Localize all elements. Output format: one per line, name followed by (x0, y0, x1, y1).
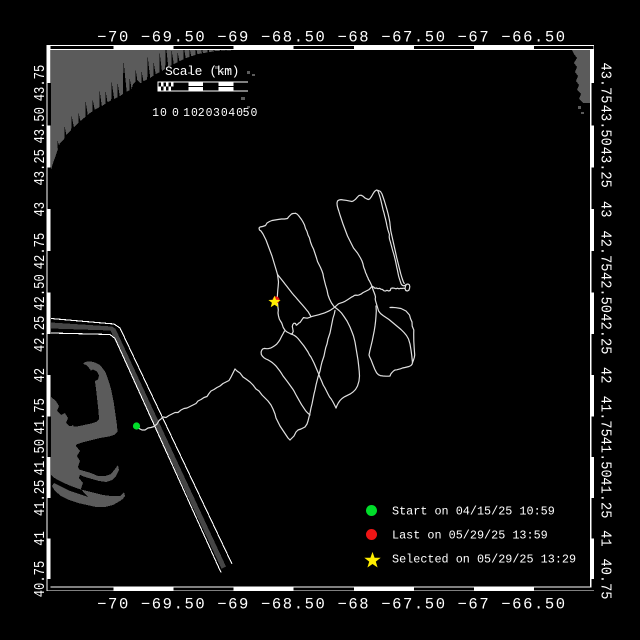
svg-text:−69.50: −69.50 (141, 596, 206, 614)
svg-text:42.25: 42.25 (33, 316, 49, 353)
svg-text:30: 30 (213, 107, 229, 120)
svg-text:−66.50: −66.50 (501, 29, 566, 47)
svg-text:41: 41 (33, 531, 49, 546)
svg-text:Last on 05/29/25 13:59: Last on 05/29/25 13:59 (392, 529, 548, 543)
svg-text:40.75: 40.75 (33, 561, 49, 598)
svg-text:41: 41 (597, 530, 613, 546)
svg-text:−70: −70 (97, 29, 130, 47)
svg-text:43.25: 43.25 (33, 149, 49, 186)
svg-text:42: 42 (597, 367, 613, 383)
svg-text:42.75: 42.75 (597, 231, 613, 272)
svg-text:10: 10 (152, 107, 168, 120)
svg-text:−69.50: −69.50 (141, 29, 206, 47)
svg-text:Start on 04/15/25 10:59: Start on 04/15/25 10:59 (392, 505, 555, 519)
svg-text:41.25: 41.25 (597, 477, 613, 518)
svg-text:−67.50: −67.50 (381, 596, 446, 614)
svg-text:−68: −68 (337, 596, 370, 614)
svg-text:10: 10 (183, 107, 199, 120)
svg-text:−68.50: −68.50 (261, 596, 326, 614)
svg-text:−69: −69 (217, 596, 250, 614)
svg-text:0: 0 (172, 107, 180, 120)
svg-text:42.25: 42.25 (597, 313, 613, 354)
svg-text:−67.50: −67.50 (381, 29, 446, 47)
svg-text:43.25: 43.25 (597, 147, 613, 188)
svg-text:Scale (km): Scale (km) (165, 64, 239, 79)
svg-text:41.75: 41.75 (597, 396, 613, 437)
svg-text:−68.50: −68.50 (261, 29, 326, 47)
svg-text:−66.50: −66.50 (501, 596, 566, 614)
svg-text:43: 43 (33, 202, 49, 217)
svg-text:42: 42 (33, 368, 49, 383)
svg-text:Selected on 05/29/25 13:29: Selected on 05/29/25 13:29 (392, 553, 576, 567)
svg-text:43.75: 43.75 (597, 63, 613, 104)
svg-text:−69: −69 (217, 29, 250, 47)
svg-text:43.50: 43.50 (597, 105, 613, 146)
svg-text:−67: −67 (458, 596, 491, 614)
svg-text:42.50: 42.50 (597, 272, 613, 313)
svg-text:41.75: 41.75 (33, 398, 49, 435)
svg-text:−67: −67 (458, 29, 491, 47)
svg-text:42.75: 42.75 (33, 233, 49, 270)
svg-text:41.25: 41.25 (33, 480, 49, 517)
svg-text:41.50: 41.50 (33, 439, 49, 476)
svg-text:41.50: 41.50 (597, 437, 613, 478)
svg-text:43.75: 43.75 (33, 65, 49, 102)
svg-text:40.75: 40.75 (597, 559, 613, 600)
svg-text:42.50: 42.50 (33, 274, 49, 311)
svg-text:43.50: 43.50 (33, 107, 49, 144)
svg-text:50: 50 (243, 107, 259, 120)
svg-text:−68: −68 (337, 29, 370, 47)
svg-text:−70: −70 (97, 596, 130, 614)
svg-text:43: 43 (597, 201, 613, 217)
svg-text:20: 20 (198, 107, 214, 120)
